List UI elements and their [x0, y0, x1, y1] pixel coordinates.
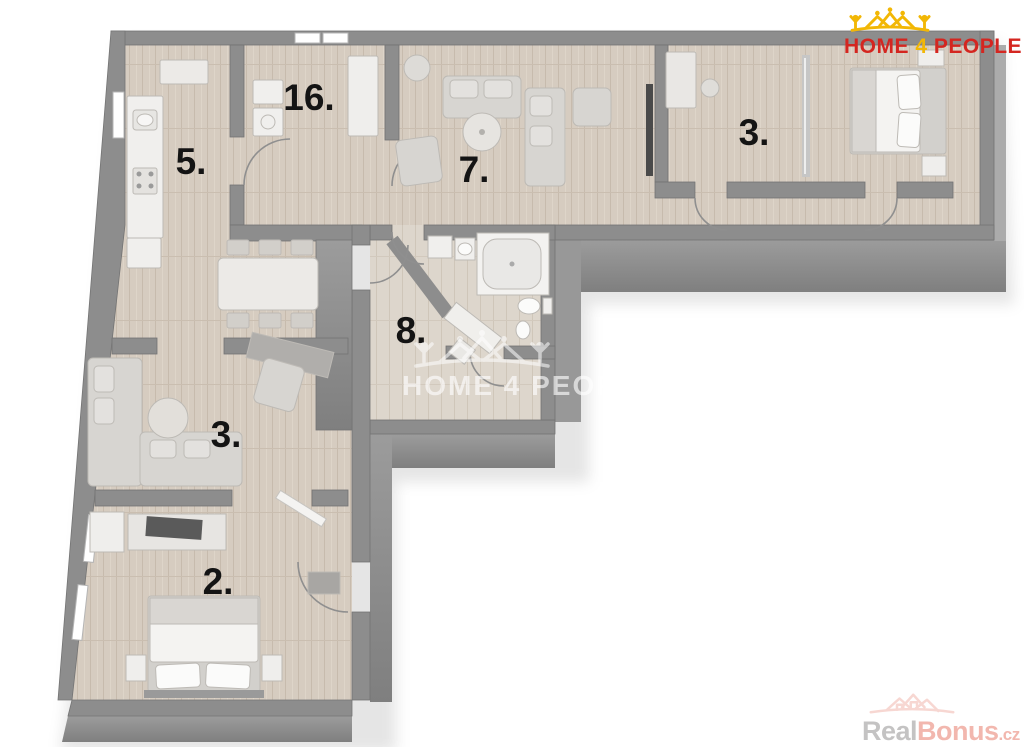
realbonus-word-real: Real: [862, 716, 917, 746]
terrace-door: [113, 92, 124, 138]
coffee-table: [148, 398, 188, 438]
pillow: [205, 663, 250, 689]
toilet: [543, 298, 552, 314]
pillow: [897, 74, 921, 109]
realbonus-word-bonus: Bonus: [917, 716, 999, 746]
stool: [701, 79, 719, 97]
logo-word-4: 4: [915, 35, 927, 58]
realbonus-word-cz: .cz: [999, 725, 1020, 744]
wall-south-bathroom: [370, 420, 555, 434]
room-label-16: 16.: [283, 77, 334, 118]
pillow: [897, 112, 921, 147]
floor-lamp: [404, 55, 430, 81]
window: [295, 33, 320, 43]
realbonus-watermark: RealBonus.cz: [862, 684, 1012, 745]
desk: [666, 52, 696, 108]
dining-table: [218, 258, 318, 310]
room-label-3-left: 3.: [211, 414, 242, 455]
floor-plan-page: 16. 5. 7. 3. 8. 3. 2.: [0, 0, 1024, 747]
armchair: [395, 135, 443, 186]
washer: [428, 236, 452, 258]
nightstand: [126, 655, 146, 681]
wall-east: [980, 31, 994, 240]
armchair: [573, 88, 611, 126]
logo-word-people: PEOPLE: [934, 35, 1022, 58]
home4people-logo: HOME 4 PEOPLE: [844, 4, 1016, 57]
pillow: [155, 663, 200, 689]
nightstand: [922, 156, 946, 176]
realbonus-watermark-text: RealBonus.cz: [862, 718, 1012, 745]
glass-partition: [802, 55, 810, 177]
floor-plan-rendering: 16. 5. 7. 3. 8. 3. 2.: [0, 0, 1024, 747]
window: [323, 33, 348, 43]
bidet: [516, 321, 530, 339]
room-label-8: 8.: [396, 310, 427, 351]
logo-word-home: HOME: [844, 35, 909, 58]
wardrobe: [308, 572, 340, 594]
wall-south-right-wing: [555, 225, 994, 240]
nightstand: [262, 655, 282, 681]
room-label-7: 7.: [459, 149, 490, 190]
wall-south-left-wing: [68, 700, 352, 716]
tv-panel: [646, 84, 653, 176]
houses-crown-icon: [844, 4, 936, 36]
tv: [145, 516, 202, 540]
house-outline-icon: [862, 684, 962, 718]
room-label-2: 2.: [203, 561, 234, 602]
room-label-3-top: 3.: [739, 112, 770, 153]
cabinet: [90, 512, 124, 552]
home4people-logo-text: HOME 4 PEOPLE: [844, 36, 1016, 57]
room-label-5: 5.: [176, 141, 207, 182]
